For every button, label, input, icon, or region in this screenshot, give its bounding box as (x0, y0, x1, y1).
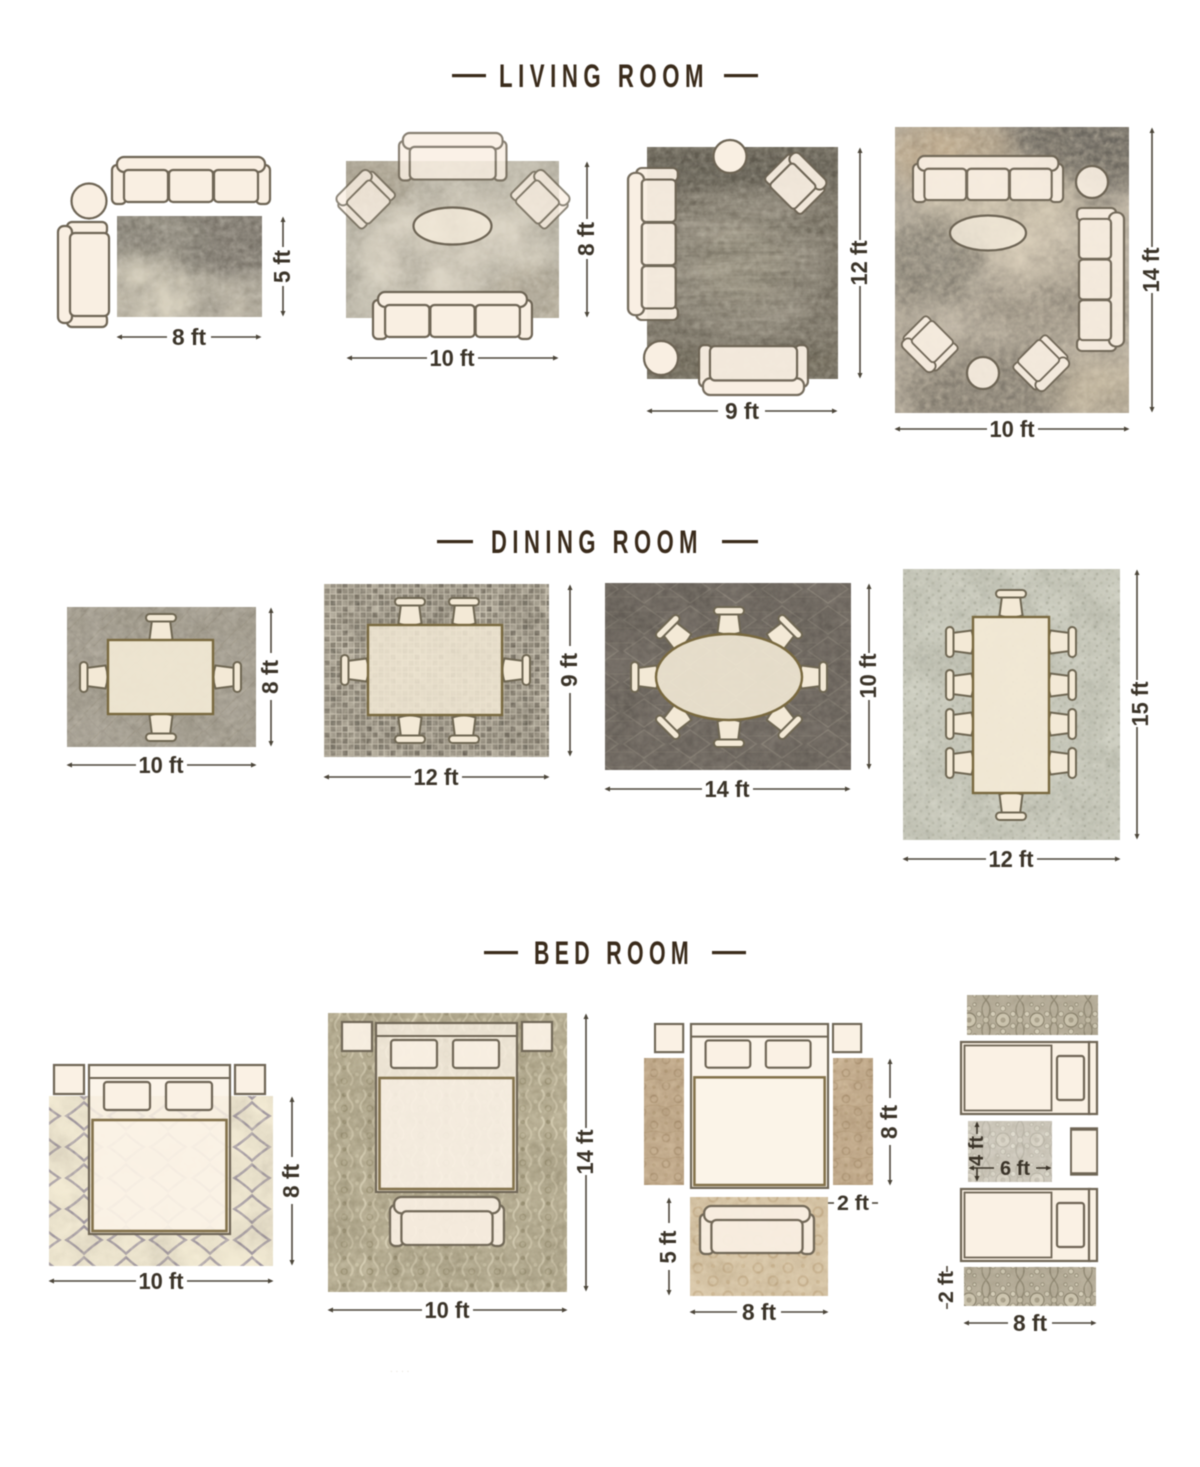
svg-text:10 ft: 10 ft (425, 1297, 470, 1323)
svg-text:12 ft: 12 ft (989, 846, 1034, 872)
svg-text:12 ft: 12 ft (414, 764, 459, 790)
svg-text:8 ft: 8 ft (172, 324, 206, 350)
svg-text:8 ft: 8 ft (876, 1105, 902, 1139)
svg-text:10 ft: 10 ft (990, 416, 1035, 442)
svg-text:8 ft: 8 ft (1013, 1310, 1047, 1336)
svg-text:4 ft: 4 ft (966, 1136, 988, 1166)
svg-text:2 ft: 2 ft (837, 1192, 869, 1215)
svg-text:LIVING ROOM: LIVING ROOM (499, 58, 709, 94)
svg-text:5 ft: 5 ft (655, 1230, 681, 1263)
svg-text:15 ft: 15 ft (1127, 681, 1153, 726)
svg-text:2 ft: 2 ft (935, 1271, 958, 1303)
svg-text:10 ft: 10 ft (139, 1268, 184, 1294)
svg-text:10 ft: 10 ft (430, 345, 475, 371)
svg-text:14 ft: 14 ft (705, 776, 750, 802)
svg-text:. . . .: . . . . (390, 1364, 409, 1375)
svg-text:8 ft: 8 ft (278, 1164, 304, 1198)
svg-text:10 ft: 10 ft (139, 752, 184, 778)
svg-text:8 ft: 8 ft (257, 660, 283, 694)
svg-text:14 ft: 14 ft (1138, 247, 1164, 292)
svg-text:5 ft: 5 ft (269, 250, 295, 283)
svg-text:8 ft: 8 ft (573, 222, 599, 256)
svg-text:9 ft: 9 ft (556, 653, 582, 687)
svg-text:10 ft: 10 ft (855, 653, 881, 698)
svg-text:8 ft: 8 ft (742, 1299, 776, 1325)
svg-text:14 ft: 14 ft (572, 1129, 598, 1174)
svg-text:9 ft: 9 ft (725, 398, 759, 424)
svg-text:12 ft: 12 ft (846, 240, 872, 285)
svg-text:6 ft: 6 ft (1000, 1158, 1030, 1180)
svg-text:DINING ROOM: DINING ROOM (491, 524, 703, 560)
svg-text:BED ROOM: BED ROOM (534, 935, 694, 971)
